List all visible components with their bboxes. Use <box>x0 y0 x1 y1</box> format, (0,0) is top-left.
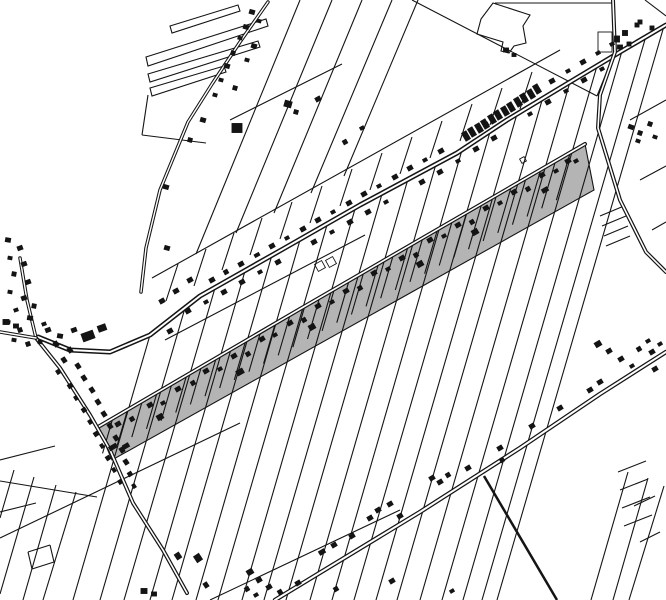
building <box>188 138 193 143</box>
building <box>12 272 17 277</box>
building <box>627 42 631 46</box>
building <box>8 290 12 294</box>
building <box>647 121 652 126</box>
building <box>637 130 642 135</box>
building <box>213 93 218 97</box>
building <box>27 316 33 321</box>
building <box>32 304 37 309</box>
cadastral-map[interactable] <box>0 0 666 600</box>
building <box>200 117 206 122</box>
building <box>14 324 19 328</box>
building <box>243 24 249 29</box>
building <box>231 51 236 56</box>
building <box>25 341 30 346</box>
building <box>638 20 642 24</box>
building <box>615 36 620 42</box>
building <box>57 334 63 339</box>
building <box>233 86 238 91</box>
building <box>42 322 47 326</box>
building <box>636 139 641 143</box>
building <box>512 54 516 57</box>
building <box>219 78 224 82</box>
building <box>152 592 157 596</box>
building <box>650 26 654 30</box>
building <box>284 100 292 108</box>
building <box>164 245 170 250</box>
building <box>653 135 658 139</box>
building <box>232 124 242 133</box>
building <box>504 48 509 52</box>
building <box>294 110 299 115</box>
building <box>251 43 257 48</box>
building <box>245 58 250 62</box>
building <box>141 589 147 594</box>
building <box>257 19 262 23</box>
building <box>3 320 9 325</box>
building <box>38 340 42 344</box>
map-canvas[interactable] <box>0 0 666 600</box>
building <box>14 308 19 312</box>
building <box>8 256 12 260</box>
building <box>12 338 16 342</box>
building <box>163 184 169 189</box>
building <box>5 238 11 243</box>
building <box>238 36 243 40</box>
building <box>618 45 623 49</box>
building <box>224 63 230 68</box>
building <box>623 31 628 36</box>
building <box>249 9 255 14</box>
